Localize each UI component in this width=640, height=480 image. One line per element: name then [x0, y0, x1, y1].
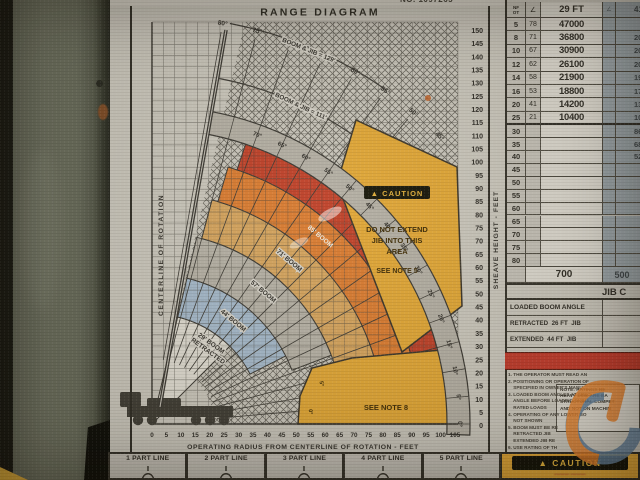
low-angle-5: 5° [318, 381, 325, 387]
svg-text:75: 75 [365, 432, 373, 439]
svg-text:130: 130 [471, 81, 483, 88]
capacity-cell: 47000 [541, 18, 603, 31]
capacity-cell-2: 13 [616, 98, 640, 111]
radius-cell: 10 [507, 45, 526, 58]
angle-cell-2 [603, 112, 616, 125]
bolt [96, 80, 103, 87]
svg-text:50: 50 [475, 291, 483, 298]
reeving-diagram-partial [373, 466, 393, 480]
part-line-label: 2 PART LINE [188, 455, 263, 462]
part-line-cell-3: 3 PART LINE [265, 452, 343, 480]
svg-text:25: 25 [475, 357, 483, 364]
svg-text:100: 100 [471, 160, 483, 167]
svg-text:80: 80 [475, 212, 483, 219]
radius-cell: 12 [507, 58, 526, 71]
radius-cell: 25 [507, 112, 526, 125]
caution-badge-text: ▲ CAUTION [371, 189, 424, 198]
capacity-cell-2: 20 [616, 45, 640, 58]
svg-text:45: 45 [278, 432, 286, 439]
svg-text:40: 40 [475, 318, 483, 325]
capacity-cell [541, 254, 603, 267]
radius-axis-label: OPERATING RADIUS FROM CENTERLINE OF ROTA… [187, 444, 419, 451]
angle-cell [526, 254, 541, 267]
min-rating-left: 700 [526, 267, 603, 283]
radius-cell: 75 [507, 241, 526, 254]
svg-text:40: 40 [264, 432, 272, 439]
reeving-diagram-partial [294, 466, 314, 480]
angle-cell: 41 [526, 98, 541, 111]
range-diagram: 0°5°10°15°20°25°30°35°40°45°50°55°60°65°… [110, 0, 505, 455]
angle-cell-2 [603, 203, 616, 216]
radius-cell: 40 [507, 151, 526, 164]
caution-line1: DO NOT EXTEND [366, 225, 428, 234]
angle-cell: 71 [526, 31, 541, 44]
radius-cell: 5 [507, 18, 526, 31]
angle-cell-2 [603, 216, 616, 229]
svg-text:70: 70 [475, 239, 483, 246]
angle-header-2: ∠ [603, 2, 616, 18]
part-line-cell-2: 2 PART LINE [186, 452, 264, 480]
angle-cell-2 [603, 45, 616, 58]
angle-cell-2 [603, 254, 616, 267]
cab-metal-frame [0, 0, 110, 480]
capacity-cell [541, 216, 603, 229]
radius-cell: 14 [507, 72, 526, 85]
retracted-jib-row: RETRACTED 26 FT JIB [507, 316, 603, 332]
capacity-cell: 36800 [541, 31, 603, 44]
metal-sheen [22, 150, 62, 310]
jib-section-header: JIB C [602, 285, 640, 299]
svg-text:110: 110 [472, 133, 483, 140]
svg-text:95: 95 [423, 432, 431, 439]
svg-text:35: 35 [250, 432, 258, 439]
angle-cell [526, 151, 541, 164]
angle-cell: 58 [526, 72, 541, 85]
reeving-diagram-partial [138, 466, 158, 480]
min-row-spacer [507, 267, 526, 283]
svg-text:90: 90 [408, 432, 416, 439]
svg-text:65: 65 [336, 432, 344, 439]
see-note-8-label: SEE NOTE 8 [364, 403, 408, 412]
svg-text:105: 105 [471, 147, 483, 154]
part-line-label: 1 PART LINE [110, 455, 185, 462]
svg-text:50: 50 [293, 432, 301, 439]
sheave-axis-label: SHEAVE HEIGHT - FEET [493, 191, 500, 289]
capacity-cell [541, 125, 603, 138]
capacity-cell-2 [616, 228, 640, 241]
svg-text:45: 45 [475, 305, 483, 312]
capacity-cell-2 [616, 190, 640, 203]
capacity-cell-2 [616, 203, 640, 216]
capacity-cell: 26100 [541, 58, 603, 71]
svg-text:65: 65 [475, 252, 483, 259]
capacity-cell-2 [616, 18, 640, 31]
part-line-cell-5: 5 PART LINE [422, 452, 500, 480]
angle-cell: 62 [526, 58, 541, 71]
reeving-diagram-partial [451, 466, 471, 480]
capacity-cell [541, 151, 603, 164]
extended-jib-row: EXTENDED 44 FT JIB [507, 332, 603, 348]
angle-cell: 78 [526, 18, 541, 31]
capacity-cell: 14200 [541, 98, 603, 111]
angle-cell-2 [603, 151, 616, 164]
caution-line4: SEE NOTE 5 [376, 268, 417, 275]
jib-col-cell [603, 332, 640, 348]
capacity-cell [541, 203, 603, 216]
angle-cell-2 [603, 18, 616, 31]
orange-speck [425, 95, 431, 101]
radius-cell: 55 [507, 190, 526, 203]
capacity-cell-2: 68 [616, 138, 640, 151]
part-number-partial-text: NO. 1097265 [400, 0, 453, 4]
svg-text:70: 70 [351, 432, 359, 439]
capacity-cell [541, 164, 603, 177]
radius-cell: 16 [507, 85, 526, 98]
angle-cell-2 [603, 85, 616, 98]
reeving-diagram-partial [216, 466, 236, 480]
capacity-cell-2: 17 [616, 85, 640, 98]
svg-text:85: 85 [394, 432, 402, 439]
angle-cell [526, 241, 541, 254]
svg-text:60: 60 [475, 265, 483, 272]
angle-cell-2 [603, 31, 616, 44]
capacity-cell: 18800 [541, 85, 603, 98]
angle-cell-2 [603, 72, 616, 85]
capacity-cell-2 [616, 241, 640, 254]
corner-header: NFOT [507, 2, 526, 18]
svg-text:150: 150 [471, 28, 483, 35]
angle-cell-2 [603, 98, 616, 111]
capacity-cell-2: 19 [616, 72, 640, 85]
capacity-cell-2 [616, 164, 640, 177]
centerline-label: CENTERLINE OF ROTATION [158, 194, 165, 316]
radius-cell: 30 [507, 125, 526, 138]
radius-cell: 80 [507, 254, 526, 267]
caution-line3: AREA [386, 247, 408, 256]
svg-text:55: 55 [475, 278, 483, 285]
part-line-label: 5 PART LINE [424, 455, 499, 462]
svg-text:10: 10 [475, 397, 483, 404]
angle-cell: 67 [526, 45, 541, 58]
svg-text:95: 95 [475, 173, 483, 180]
angle-cell-2 [603, 58, 616, 71]
frame-edge [0, 0, 13, 480]
capacity-cell-2: 20 [616, 31, 640, 44]
svg-text:30: 30 [235, 432, 243, 439]
svg-text:20: 20 [206, 432, 214, 439]
angle-cell-2 [603, 177, 616, 190]
capacity-cell: 30900 [541, 45, 603, 58]
jib-col-cell [603, 300, 640, 316]
capacity-cell-2 [616, 254, 640, 267]
capacity-cell-2: 52 [616, 151, 640, 164]
capacity-cell: 10400 [541, 112, 603, 125]
svg-text:135: 135 [471, 68, 483, 75]
part-line-cell-1: 1 PART LINE [108, 452, 186, 480]
svg-text:145: 145 [471, 41, 483, 48]
svg-text:85: 85 [475, 199, 483, 206]
capacity-cell [541, 228, 603, 241]
radius-cell: 35 [507, 138, 526, 151]
jib-col-cell [603, 316, 640, 332]
angle-cell-2 [603, 138, 616, 151]
rust-spot [98, 104, 108, 120]
capacity-cell-2 [616, 216, 640, 229]
capacity-cell-2: 20 [616, 58, 640, 71]
caution-line2: JIB INTO THIS [372, 236, 423, 245]
loaded-boom-angle-row: LOADED BOOM ANGLE [507, 300, 603, 316]
angle-cell [526, 125, 541, 138]
diagram-title: RANGE DIAGRAM [260, 7, 380, 19]
capacity-cell-2: 10 [616, 112, 640, 125]
capacity-cell: 21900 [541, 72, 603, 85]
angle-header: ∠ [526, 2, 541, 18]
part-line-cell-4: 4 PART LINE [343, 452, 421, 480]
svg-text:80: 80 [379, 432, 387, 439]
angle-cell [526, 164, 541, 177]
svg-text:55: 55 [307, 432, 315, 439]
angle-cell-2 [603, 241, 616, 254]
capacity-cell-2: 86 [616, 125, 640, 138]
capacity-cell [541, 241, 603, 254]
radius-cell: 60 [507, 203, 526, 216]
part-line-label: 4 PART LINE [345, 455, 420, 462]
radius-cell: 8 [507, 31, 526, 44]
radius-cell: 65 [507, 216, 526, 229]
svg-text:125: 125 [471, 94, 483, 101]
svg-text:60: 60 [322, 432, 330, 439]
low-angle-0: 0° [307, 409, 313, 415]
svg-text:0: 0 [479, 423, 483, 430]
svg-text:25: 25 [221, 432, 229, 439]
svg-text:75: 75 [475, 226, 483, 233]
angle-cell-2 [603, 190, 616, 203]
svg-text:10: 10 [177, 432, 185, 439]
capacity-cell [541, 177, 603, 190]
svg-text:15: 15 [192, 432, 200, 439]
svg-text:0: 0 [150, 432, 154, 439]
svg-text:5: 5 [165, 432, 169, 439]
angle-cell: 21 [526, 112, 541, 125]
metal-seam [93, 0, 110, 480]
svg-text:140: 140 [471, 54, 483, 61]
svg-text:30: 30 [475, 344, 483, 351]
angle-cell [526, 216, 541, 229]
min-rating-right: 500 [603, 267, 640, 283]
angle-cell-2 [603, 228, 616, 241]
photo-of-crane-range-diagram-placard: NO. 1097265 0°5°10°15°20°25°30°35°40°45°… [0, 0, 640, 480]
angle-cell [526, 190, 541, 203]
angle-cell [526, 138, 541, 151]
capacity-cell-2 [616, 177, 640, 190]
radius-cell: 20 [507, 98, 526, 111]
boom-length-header: 29 FT [541, 2, 603, 18]
angle-cell [526, 203, 541, 216]
svg-text:15: 15 [475, 384, 483, 391]
angle-cell [526, 228, 541, 241]
svg-text:90: 90 [475, 186, 483, 193]
photo-watermark-logo [540, 368, 640, 480]
svg-text:100: 100 [435, 432, 446, 439]
angle-cell: 53 [526, 85, 541, 98]
angle-cell [526, 177, 541, 190]
capacity-cell [541, 138, 603, 151]
capacity-cell [541, 190, 603, 203]
svg-text:120: 120 [471, 107, 483, 114]
part-line-label: 3 PART LINE [267, 455, 342, 462]
svg-text:5: 5 [479, 410, 483, 417]
angle-cell-2 [603, 164, 616, 177]
boom-length-header-2: 41 [616, 2, 640, 18]
radius-cell: 50 [507, 177, 526, 190]
svg-text:20: 20 [475, 370, 483, 377]
radius-cell: 45 [507, 164, 526, 177]
angle-cell-2 [603, 125, 616, 138]
radius-cell: 70 [507, 228, 526, 241]
svg-text:115: 115 [472, 120, 483, 127]
svg-text:35: 35 [475, 331, 483, 338]
svg-text:105: 105 [450, 432, 461, 439]
